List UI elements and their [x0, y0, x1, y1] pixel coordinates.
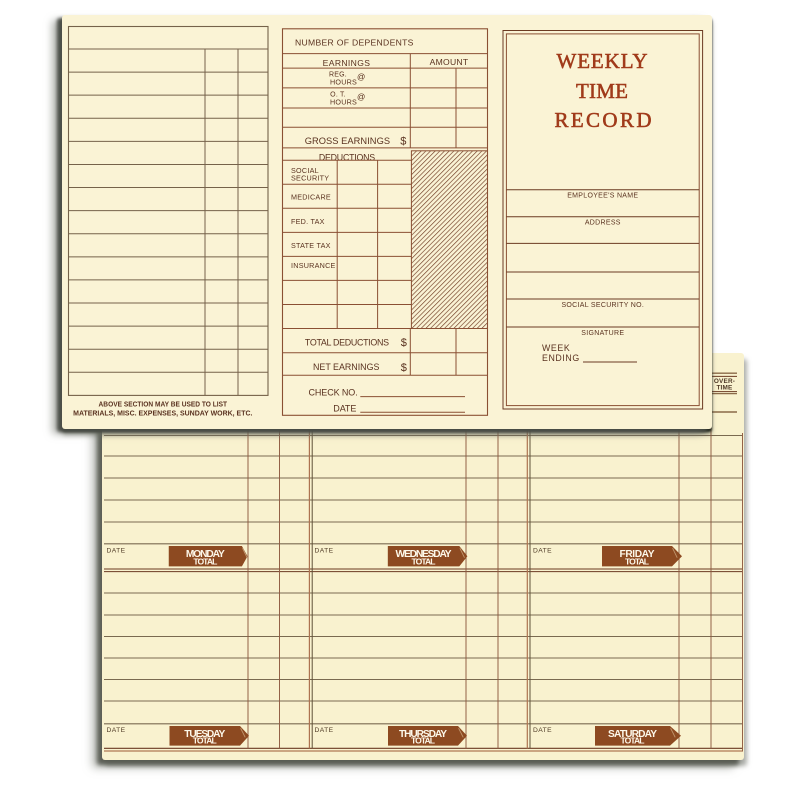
svg-text:$: $ — [400, 135, 406, 147]
svg-text:TOTAL DEDUCTIONS: TOTAL DEDUCTIONS — [305, 337, 389, 347]
svg-text:EARNINGS: EARNINGS — [323, 58, 371, 68]
svg-text:SECURITY: SECURITY — [291, 173, 329, 182]
svg-text:@: @ — [357, 93, 365, 102]
svg-text:ENDING: ENDING — [542, 353, 580, 363]
svg-text:WEEKLY: WEEKLY — [557, 49, 648, 73]
svg-text:MATERIALS, MISC. EXPENSES, SUN: MATERIALS, MISC. EXPENSES, SUNDAY WORK, … — [73, 410, 252, 417]
svg-text:WEEK: WEEK — [542, 343, 570, 353]
svg-text:HOURS: HOURS — [330, 77, 357, 86]
svg-text:@: @ — [357, 73, 365, 82]
svg-text:TIME: TIME — [716, 385, 733, 392]
svg-text:TOTAL: TOTAL — [621, 736, 645, 746]
svg-text:ABOVE SECTION MAY BE USED TO L: ABOVE SECTION MAY BE USED TO LIST — [99, 401, 228, 408]
svg-text:TOTAL: TOTAL — [412, 556, 436, 566]
svg-text:ADDRESS: ADDRESS — [585, 220, 621, 227]
svg-text:NET EARNINGS: NET EARNINGS — [313, 362, 379, 372]
svg-text:STATE TAX: STATE TAX — [291, 241, 331, 250]
svg-text:DATE: DATE — [315, 547, 334, 554]
svg-text:TOTAL: TOTAL — [625, 556, 649, 566]
svg-text:DATE: DATE — [333, 403, 356, 413]
svg-text:TOTAL: TOTAL — [193, 556, 217, 566]
svg-text:AMOUNT: AMOUNT — [430, 57, 469, 67]
svg-text:GROSS EARNINGS: GROSS EARNINGS — [305, 136, 390, 146]
svg-text:DEDUCTIONS: DEDUCTIONS — [319, 152, 375, 162]
svg-text:MEDICARE: MEDICARE — [291, 193, 331, 202]
svg-text:CHECK NO.: CHECK NO. — [309, 388, 358, 398]
svg-text:FED. TAX: FED. TAX — [291, 217, 325, 226]
svg-text:TOTAL: TOTAL — [411, 736, 435, 746]
svg-text:NUMBER OF DEPENDENTS: NUMBER OF DEPENDENTS — [295, 37, 414, 47]
svg-text:DATE: DATE — [533, 727, 552, 734]
svg-text:DATE: DATE — [107, 547, 126, 554]
svg-text:DATE: DATE — [533, 547, 552, 554]
svg-text:$: $ — [401, 337, 407, 349]
svg-text:DATE: DATE — [315, 727, 334, 734]
svg-text:RECORD: RECORD — [555, 108, 652, 132]
svg-text:SOCIAL SECURITY NO.: SOCIAL SECURITY NO. — [561, 302, 644, 309]
svg-text:INSURANCE: INSURANCE — [291, 261, 336, 270]
svg-text:TOTAL: TOTAL — [193, 736, 217, 746]
svg-text:EMPLOYEE'S NAME: EMPLOYEE'S NAME — [567, 193, 638, 200]
svg-text:DATE: DATE — [107, 727, 126, 734]
svg-text:SIGNATURE: SIGNATURE — [581, 330, 624, 337]
svg-text:$: $ — [401, 362, 407, 374]
svg-text:TIME: TIME — [576, 79, 628, 103]
svg-text:HOURS: HOURS — [330, 97, 357, 106]
